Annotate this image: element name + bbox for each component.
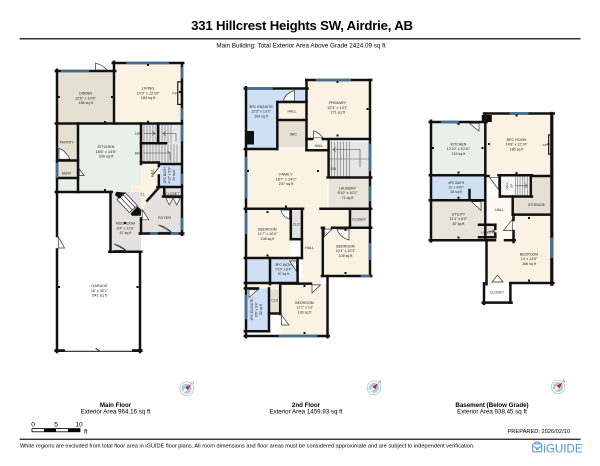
svg-text:104 sq ft: 104 sq ft — [254, 114, 268, 118]
svg-text:SERV: SERV — [62, 172, 72, 176]
svg-text:14'3" x 12'10": 14'3" x 12'10" — [137, 91, 161, 95]
svg-text:KITCHEN: KITCHEN — [451, 143, 467, 147]
svg-text:STORAGE: STORAGE — [528, 203, 546, 207]
svg-text:WIC: WIC — [290, 133, 297, 137]
svg-text:PRIMARY: PRIMARY — [329, 101, 347, 105]
svg-text:ft: ft — [84, 429, 88, 436]
svg-text:186 sq ft: 186 sq ft — [510, 147, 524, 151]
svg-text:24 sq ft: 24 sq ft — [172, 170, 176, 181]
svg-text:2PC BATH: 2PC BATH — [163, 167, 167, 184]
svg-text:Exterior Area 1459.93 sq ft: Exterior Area 1459.93 sq ft — [269, 408, 343, 415]
svg-text:PANTRY: PANTRY — [60, 141, 75, 145]
svg-text:KITCHEN: KITCHEN — [98, 145, 115, 149]
svg-text:18' x 30'1": 18' x 30'1" — [91, 289, 109, 293]
svg-text:LAUNDRY: LAUNDRY — [339, 187, 357, 191]
svg-text:67 sq ft: 67 sq ft — [278, 272, 289, 276]
svg-text:GARAGE: GARAGE — [91, 284, 108, 288]
svg-text:BEDROOM: BEDROOM — [336, 245, 355, 249]
svg-text:BEDROOM: BEDROOM — [295, 301, 314, 305]
svg-text:FOYER: FOYER — [158, 216, 171, 220]
svg-text:CLO: CLO — [293, 223, 300, 227]
svg-text:11'4" x 8'2": 11'4" x 8'2" — [450, 217, 468, 221]
svg-text:Exterior Area 938.45 sq ft: Exterior Area 938.45 sq ft — [457, 408, 527, 415]
svg-text:6'4" x 12'0": 6'4" x 12'0" — [117, 226, 135, 230]
svg-text:CLOSET: CLOSET — [490, 291, 505, 295]
svg-text:HALL: HALL — [288, 109, 297, 113]
svg-text:200 sq ft: 200 sq ft — [99, 155, 115, 159]
svg-text:87 sq ft: 87 sq ft — [453, 222, 465, 226]
svg-text:237 sq ft: 237 sq ft — [279, 182, 295, 186]
svg-text:UTILITY: UTILITY — [452, 213, 466, 217]
svg-text:11'7" x 10'4": 11'7" x 10'4" — [258, 232, 278, 236]
svg-text:DN: DN — [135, 152, 141, 156]
svg-text:REC ROOM: REC ROOM — [507, 138, 527, 142]
svg-text:N: N — [563, 379, 566, 383]
svg-text:130 sq ft: 130 sq ft — [298, 310, 312, 314]
svg-text:14'8" x 12'10": 14'8" x 12'10" — [506, 143, 528, 147]
svg-text:5PC ENSUITE: 5PC ENSUITE — [249, 105, 273, 109]
svg-text:11'1" x 13': 11'1" x 13' — [296, 306, 312, 310]
svg-text:67 sq ft: 67 sq ft — [120, 231, 132, 235]
svg-text:DN: DN — [331, 167, 337, 171]
svg-text:FAMILY: FAMILY — [279, 173, 293, 177]
svg-text:Exterior Area 964.16 sq ft: Exterior Area 964.16 sq ft — [81, 408, 151, 415]
svg-text:LIVING: LIVING — [142, 87, 154, 91]
svg-text:HALL: HALL — [495, 208, 504, 212]
svg-text:18'7" x 14'2": 18'7" x 14'2" — [276, 177, 297, 181]
svg-text:12'6" x 10'6": 12'6" x 10'6" — [75, 96, 96, 100]
svg-text:4PC ENSUITE: 4PC ENSUITE — [250, 298, 254, 321]
svg-text:7'10" x 8'4": 7'10" x 8'4" — [275, 268, 292, 272]
svg-text:10: 10 — [75, 422, 83, 429]
svg-text:0: 0 — [31, 422, 35, 429]
svg-text:UP: UP — [510, 184, 514, 188]
svg-text:138 sq ft: 138 sq ft — [78, 101, 94, 105]
svg-text:F/P: F/P — [543, 143, 548, 147]
svg-text:Main Building: Total Exterior: Main Building: Total Exterior Area Above… — [216, 43, 386, 50]
svg-text:108 sq ft: 108 sq ft — [261, 237, 275, 241]
svg-text:541 sq ft: 541 sq ft — [92, 294, 108, 298]
svg-text:166 sq ft: 166 sq ft — [522, 262, 536, 266]
svg-text:10'4" x 10'3": 10'4" x 10'3" — [336, 249, 356, 253]
svg-text:BEDROOM: BEDROOM — [258, 228, 277, 232]
svg-text:White regions are excluded fro: White regions are excluded from total fl… — [20, 444, 475, 450]
svg-text:PREPARED: 2026/02/10: PREPARED: 2026/02/10 — [508, 429, 571, 435]
svg-text:6'6" x 9'4": 6'6" x 9'4" — [255, 301, 259, 316]
svg-text:HALL: HALL — [315, 144, 324, 148]
svg-text:52 sq ft: 52 sq ft — [259, 304, 263, 315]
svg-text:CLOSET: CLOSET — [352, 218, 367, 222]
svg-text:15'6" x 14'6": 15'6" x 14'6" — [96, 150, 117, 154]
svg-text:CLO: CLO — [271, 299, 278, 303]
svg-text:BEDROOM: BEDROOM — [520, 253, 539, 257]
svg-text:iGUIDE: iGUIDE — [543, 442, 583, 455]
svg-text:8'10" x 10'3": 8'10" x 10'3" — [338, 191, 358, 195]
svg-text:14' x 14'5": 14' x 14'5" — [521, 257, 538, 261]
svg-text:HALL: HALL — [505, 182, 509, 190]
svg-text:4'10" x 5'0": 4'10" x 5'0" — [168, 166, 172, 183]
svg-text:71 sq ft: 71 sq ft — [342, 196, 354, 200]
svg-text:171 sq ft: 171 sq ft — [330, 111, 346, 115]
svg-text:5PC BATH: 5PC BATH — [275, 263, 292, 267]
svg-text:12'3" x 13'1": 12'3" x 13'1" — [327, 106, 348, 110]
svg-text:F/P: F/P — [172, 91, 177, 95]
svg-text:119 sq ft: 119 sq ft — [452, 152, 466, 156]
svg-text:DINING: DINING — [79, 92, 92, 96]
svg-text:N: N — [191, 381, 194, 385]
svg-text:4PC BATH: 4PC BATH — [448, 181, 465, 185]
svg-text:CLOSET: CLOSET — [165, 192, 180, 196]
svg-text:331 Hillcrest Heights SW, Aird: 331 Hillcrest Heights SW, Airdrie, AB — [191, 18, 413, 33]
svg-text:12'3" x 13'2": 12'3" x 13'2" — [251, 110, 271, 114]
svg-text:N: N — [379, 380, 382, 384]
svg-text:12'10" x 10'11": 12'10" x 10'11" — [447, 147, 471, 151]
svg-text:5: 5 — [54, 422, 58, 429]
svg-text:52 sq ft: 52 sq ft — [450, 190, 461, 194]
svg-text:HALL: HALL — [305, 246, 314, 250]
svg-text:184 sq ft: 184 sq ft — [141, 96, 157, 100]
svg-text:11' x 4'10": 11' x 4'10" — [448, 186, 464, 190]
svg-text:106 sq ft: 106 sq ft — [339, 254, 353, 258]
